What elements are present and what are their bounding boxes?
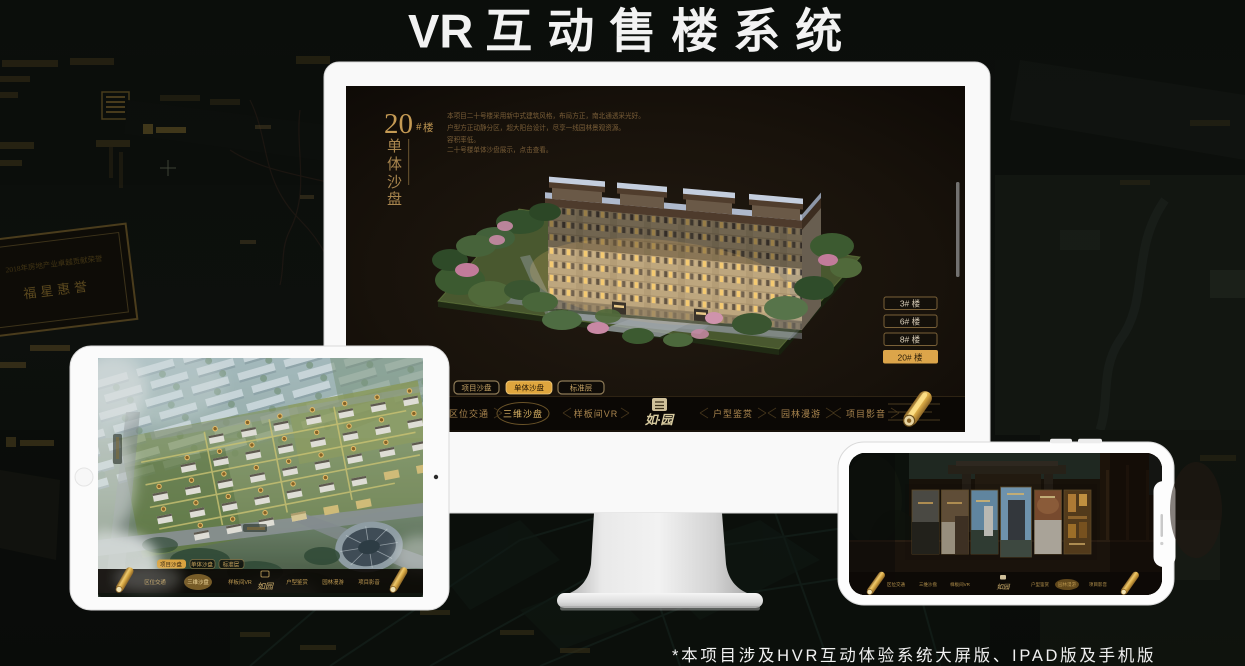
svg-text:户型鉴赏: 户型鉴赏 <box>286 578 308 586</box>
svg-text:三维沙盘: 三维沙盘 <box>919 581 937 588</box>
svg-text:单: 单 <box>387 138 402 155</box>
svg-text:沙: 沙 <box>387 174 402 191</box>
svg-text:三维沙盘: 三维沙盘 <box>503 408 543 419</box>
svg-text:楼: 楼 <box>423 121 434 134</box>
svg-text:8# 楼: 8# 楼 <box>900 335 921 345</box>
svg-text:园林漫游: 园林漫游 <box>781 408 821 419</box>
svg-text:区位交通: 区位交通 <box>887 581 905 588</box>
svg-text:户型鉴赏: 户型鉴赏 <box>713 408 753 419</box>
svg-text:*本项目涉及HVR互动体验系统大屏版、IPAD版及手机版: *本项目涉及HVR互动体验系统大屏版、IPAD版及手机版 <box>672 646 1156 665</box>
svg-text:样板间VR: 样板间VR <box>228 578 252 586</box>
svg-text:盘: 盘 <box>387 190 402 208</box>
svg-text:标准层: 标准层 <box>223 561 240 569</box>
svg-text:三维沙盘: 三维沙盘 <box>187 578 209 586</box>
svg-text:园林漫游: 园林漫游 <box>1058 581 1076 588</box>
svg-text:项目沙盘: 项目沙盘 <box>462 383 492 393</box>
svg-text:#: # <box>416 121 422 133</box>
svg-text:20: 20 <box>384 108 413 140</box>
svg-text:本项目二十号楼采用新中式建筑风格，布局方正，南北通透采光好。: 本项目二十号楼采用新中式建筑风格，布局方正，南北通透采光好。 <box>447 111 645 120</box>
svg-text:项目影音: 项目影音 <box>846 408 886 419</box>
svg-text:户型鉴赏: 户型鉴赏 <box>1031 581 1049 588</box>
svg-text:如园: 如园 <box>997 583 1012 591</box>
svg-text:项目影音: 项目影音 <box>1089 581 1107 588</box>
svg-text:户型方正动静分区，超大阳台设计，尽享一线园林景观资源。: 户型方正动静分区，超大阳台设计，尽享一线园林景观资源。 <box>447 123 625 132</box>
svg-text:体: 体 <box>387 156 402 173</box>
svg-text:3# 楼: 3# 楼 <box>900 299 921 309</box>
svg-text:容积率低。: 容积率低。 <box>447 135 480 144</box>
svg-text:二十号楼单体沙盘展示，点击查看。: 二十号楼单体沙盘展示，点击查看。 <box>447 145 553 154</box>
svg-text:标准层: 标准层 <box>570 383 593 393</box>
svg-text:区位交通: 区位交通 <box>449 408 489 419</box>
svg-text:单体沙盘: 单体沙盘 <box>514 383 544 393</box>
svg-text:单体沙盘: 单体沙盘 <box>191 561 214 569</box>
svg-text:如园: 如园 <box>257 582 274 591</box>
svg-text:20# 楼: 20# 楼 <box>897 353 923 363</box>
svg-text:项目影音: 项目影音 <box>358 578 380 586</box>
svg-text:样板间VR: 样板间VR <box>574 408 619 419</box>
svg-text:如·园: 如·园 <box>645 413 676 427</box>
svg-text:园林漫游: 园林漫游 <box>322 578 344 586</box>
svg-text:样板间VR: 样板间VR <box>950 581 971 588</box>
svg-text:6# 楼: 6# 楼 <box>900 317 921 327</box>
